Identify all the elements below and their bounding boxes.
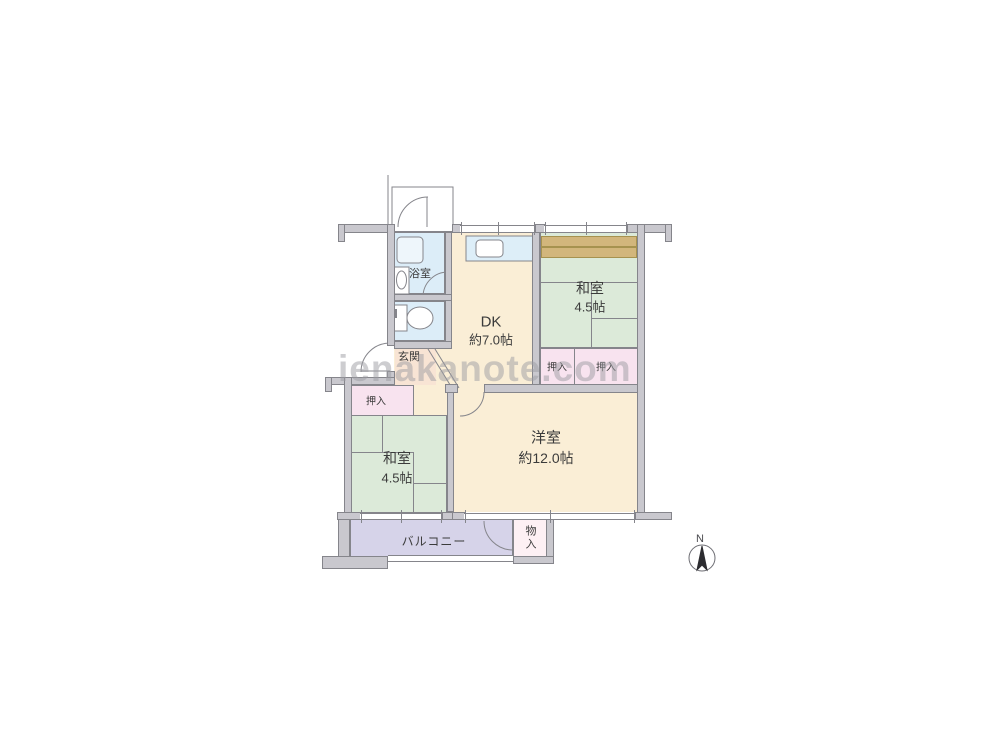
floor-plan: N 浴室 DK 約7.0帖 和室 4.5帖 玄関 押入 押 (0, 0, 1000, 750)
window-tick (634, 510, 635, 523)
window-tick (586, 222, 587, 235)
wall-top-left-cap (338, 224, 345, 242)
toilet-bowl (407, 307, 433, 329)
label-balcony: バルコニー (402, 533, 467, 550)
label-japanese-upper: 和室 (576, 278, 604, 298)
wall-left-upper (387, 224, 395, 346)
wall-lower-left (344, 377, 352, 519)
compass-north-label: N (696, 533, 704, 545)
washbasin-bowl (397, 271, 407, 289)
label-japanese-lower: 和室 (383, 448, 411, 468)
wall-bottom-western-b (635, 512, 672, 520)
label-storage: 物入 (522, 525, 538, 551)
window-tick (465, 510, 466, 523)
wall-storage-bottom (513, 556, 554, 564)
kitchen-sink (476, 240, 503, 257)
window-tick (361, 510, 362, 523)
watermark: ienakanote.com (338, 348, 658, 390)
label-western: 洋室 (531, 427, 561, 448)
storage-door-arc (484, 521, 513, 550)
window-tick (441, 510, 442, 523)
label-dk: DK (481, 314, 502, 331)
window-tick (461, 222, 462, 235)
window-tick (534, 222, 535, 235)
label-japanese-upper-size: 4.5帖 (574, 297, 605, 316)
wall-bath-toilet (394, 294, 452, 301)
window-tick (550, 510, 551, 523)
label-dk-size: 約7.0帖 (469, 330, 513, 349)
wall-japanese-western (447, 392, 454, 512)
wall-top-right-cap (665, 224, 672, 242)
label-bathroom: 浴室 (409, 265, 431, 281)
balcony-railing (388, 555, 513, 562)
window-tick (626, 222, 627, 235)
bathtub (397, 237, 423, 263)
label-closet-lower: 押入 (366, 393, 386, 408)
wall-balcony-bottom-left (322, 556, 388, 569)
window-tick (498, 222, 499, 235)
wall-mid-left-cap (325, 377, 332, 392)
window-tick (401, 510, 402, 523)
porch-outline (392, 187, 453, 227)
porch-threshold (394, 231, 452, 232)
label-western-size: 約12.0帖 (518, 448, 573, 468)
western-room-door-arc (460, 392, 484, 416)
wall-balcony-left (338, 519, 350, 561)
wall-top-left (338, 224, 394, 233)
window-tick (545, 222, 546, 235)
label-japanese-lower-size: 4.5帖 (381, 468, 412, 487)
wall-bath-dk (445, 232, 452, 349)
